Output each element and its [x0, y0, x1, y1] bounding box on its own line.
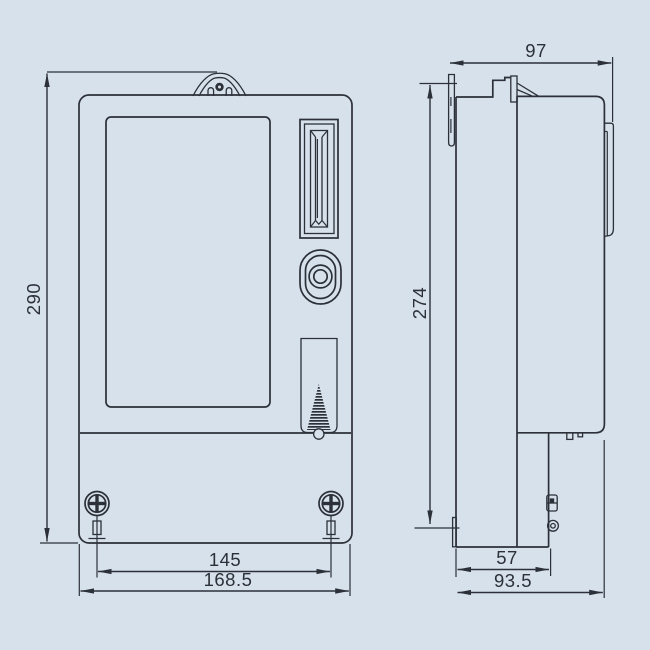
right-mounting-screw	[319, 492, 343, 578]
back-foot-tab	[453, 518, 457, 547]
dimension-front-height: 290	[23, 72, 217, 543]
dimension-side-mounting-height: 274	[409, 84, 460, 529]
back-mounting-plate	[449, 75, 455, 147]
card-slot-bezel-profile	[604, 123, 613, 236]
left-mounting-screw	[85, 492, 109, 578]
dim-label-97: 97	[525, 40, 547, 61]
card-slot	[300, 120, 338, 239]
dim-label-274: 274	[409, 287, 430, 319]
hatched-cone-icon	[307, 384, 331, 430]
dim-label-168-5: 168.5	[204, 569, 253, 590]
front-cover-profile	[517, 96, 604, 432]
front-view: 290 145 168.5	[23, 72, 352, 596]
push-button	[300, 250, 341, 304]
seal-strip	[301, 339, 337, 440]
dim-label-290: 290	[23, 283, 44, 315]
seal-fittings	[547, 433, 583, 531]
top-hanger-profile	[456, 76, 539, 102]
hanger-bracket	[193, 73, 246, 96]
dimension-drawing: 290 145 168.5	[0, 0, 650, 650]
dimension-side-overall-depth: 93.5	[458, 440, 605, 598]
dim-label-93-5: 93.5	[494, 570, 532, 591]
dimension-side-top-depth: 97	[450, 40, 613, 122]
lcd-screen	[106, 117, 270, 407]
side-view: 97 274 57 93.5	[409, 40, 613, 598]
dim-label-145: 145	[209, 549, 241, 570]
seal-screw	[314, 429, 324, 439]
dim-label-57: 57	[496, 547, 518, 568]
